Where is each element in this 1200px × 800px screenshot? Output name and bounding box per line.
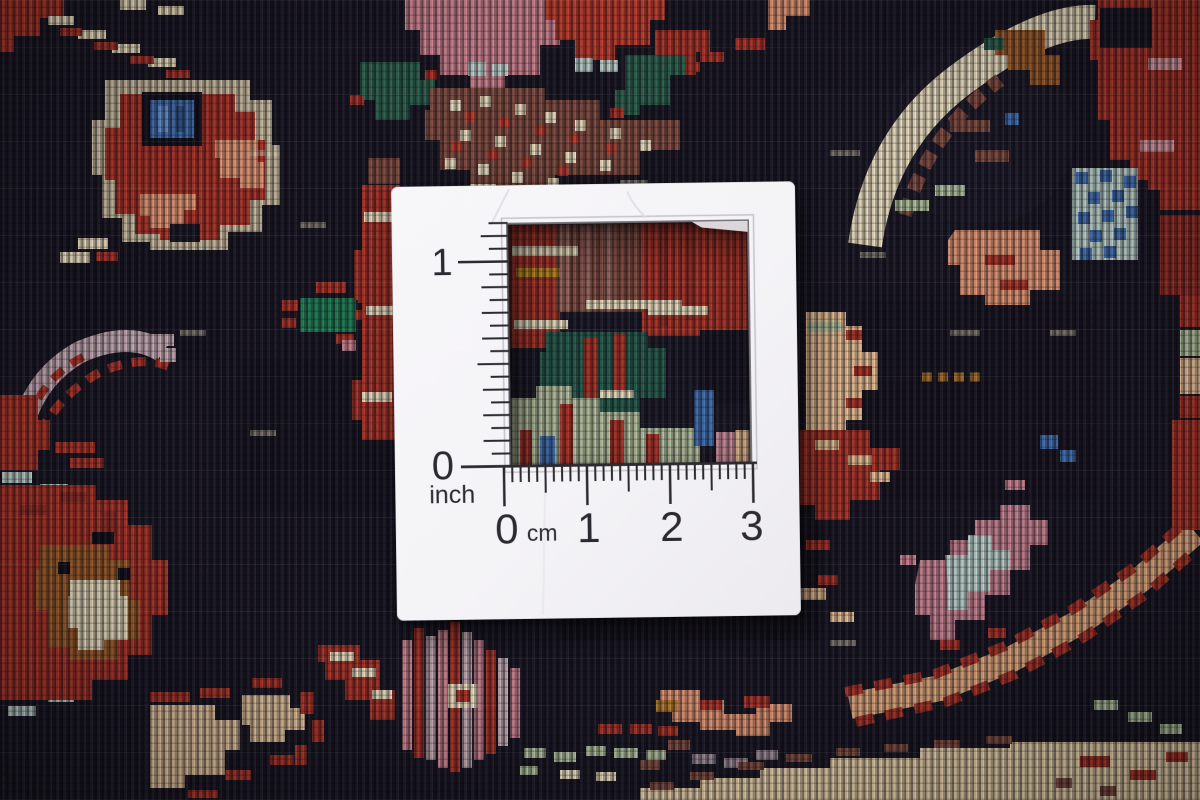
cm-scale-label-3: 3 xyxy=(740,502,764,549)
ruler-tick xyxy=(504,466,505,506)
inch-unit-label: inch xyxy=(429,481,475,510)
window-rim xyxy=(508,221,751,466)
photo-of-carpet-with-measuring-card: 1 0 inch 0 cm 1 2 3 xyxy=(0,0,1200,800)
cm-unit-label: cm xyxy=(527,520,558,546)
window-flap-sliver xyxy=(692,221,748,233)
inch-scale-label-1: 1 xyxy=(431,242,453,284)
cm-scale-label-2: 2 xyxy=(660,503,684,550)
ruler-tick xyxy=(753,463,754,503)
card-body xyxy=(391,181,801,621)
cm-scale-label-1: 1 xyxy=(577,504,601,551)
ruler-tick xyxy=(587,465,588,505)
measuring-card: 1 0 inch 0 cm 1 2 3 xyxy=(391,181,801,621)
ruler-tick xyxy=(458,261,508,262)
window-cut-line xyxy=(501,215,757,472)
cm-scale-label-0: 0 xyxy=(495,505,519,552)
ruler-tick xyxy=(670,464,671,504)
